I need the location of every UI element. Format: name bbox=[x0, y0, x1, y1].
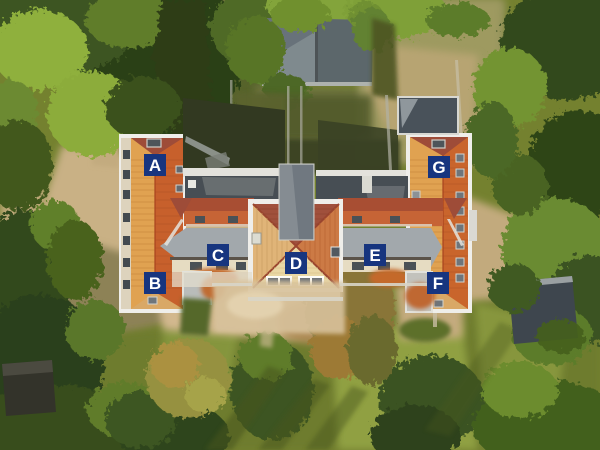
svg-text:A: A bbox=[149, 156, 161, 175]
svg-text:G: G bbox=[432, 158, 445, 177]
svg-text:B: B bbox=[149, 274, 161, 293]
svg-text:E: E bbox=[369, 246, 380, 265]
svg-text:D: D bbox=[290, 254, 302, 273]
svg-text:C: C bbox=[212, 246, 224, 265]
svg-text:F: F bbox=[433, 274, 443, 293]
